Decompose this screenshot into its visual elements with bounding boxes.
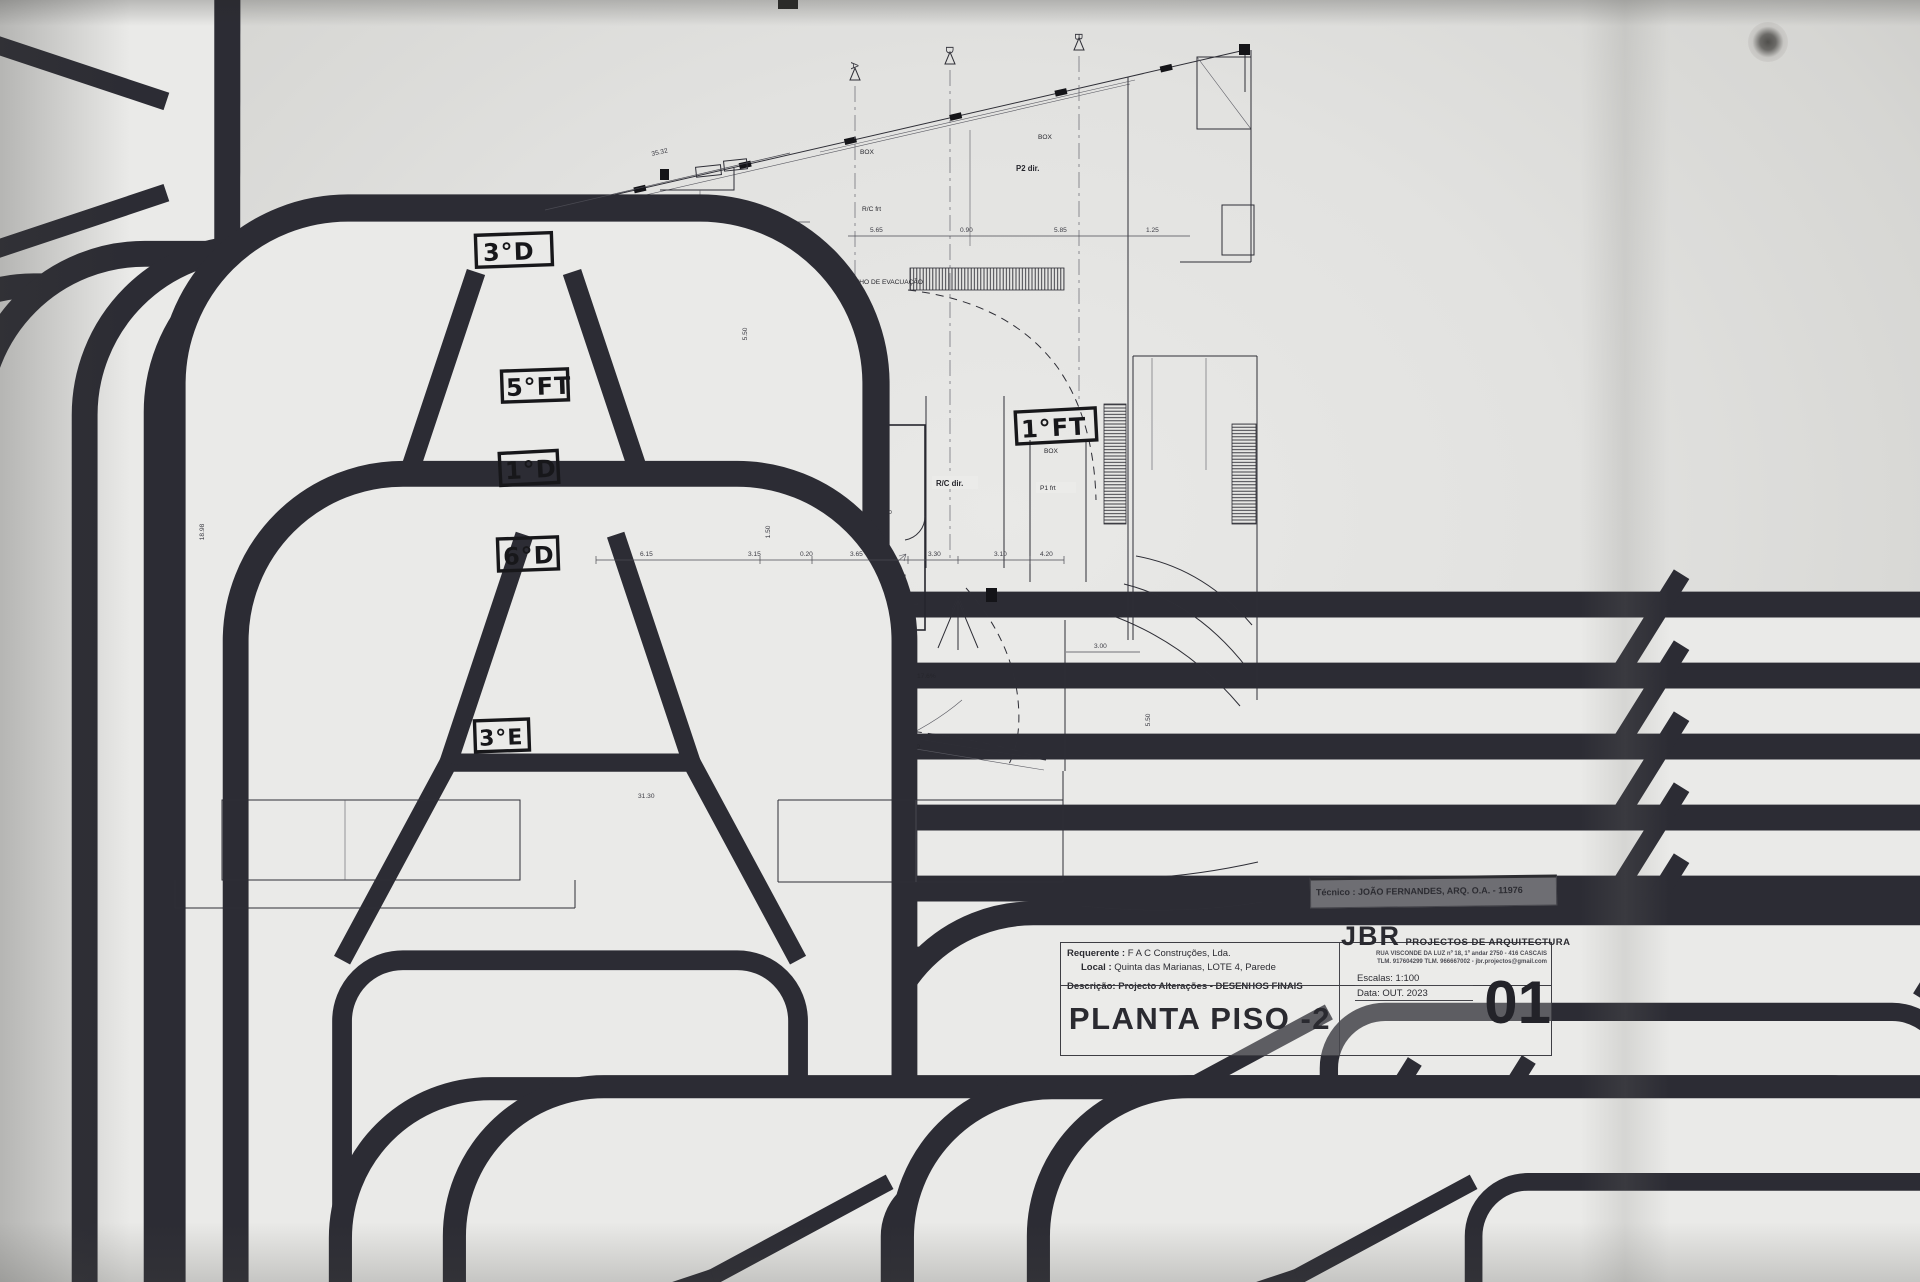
firm-name: PROJECTOS DE ARQUITECTURA (1405, 937, 1570, 948)
dim-31-30: 31.30 (638, 793, 655, 800)
dim-5-50-right: 5.50 (1145, 713, 1152, 726)
scanned-floor-plan-photo: A D B B C C (0, 0, 1920, 1282)
dim-5-50-ramp: 5.50 (742, 327, 749, 340)
dim-1-25: 1.25 (1146, 227, 1159, 234)
firm-address: RUA VISCONDE DA LUZ nº 18, 1º andar 2750… (1341, 951, 1547, 959)
title-block-right: JBR PROJECTOS DE ARQUITECTURA RUA VISCON… (1339, 943, 1551, 1055)
local-label: Local : (1081, 962, 1112, 973)
descricao-value: Projecto Alterações - DESENHOS FINAIS (1118, 981, 1302, 992)
dim-1-50: 1.50 (765, 525, 772, 538)
tecnico-strip: Técnico : JOÃO FERNANDES, ARQ. O.A. - 11… (1310, 874, 1557, 908)
date-row: Data: OUT. 2023 (1355, 986, 1473, 1001)
handwritten-3e: 3°E (479, 725, 524, 752)
date-value: OUT. 2023 (1382, 988, 1427, 999)
box-label: BOX (860, 149, 875, 156)
p2-dir-label: P2 dir. (1016, 164, 1039, 173)
p1-frt-label: P1 frt (1040, 485, 1056, 492)
dim-5-85: 5.85 (1054, 227, 1067, 234)
descricao-label: Descrição: (1067, 981, 1116, 992)
dim-35-32: 35.32 (651, 147, 669, 158)
scale-value: 1:100 (1396, 973, 1420, 984)
firm-logo: JBR PROJECTOS DE ARQUITECTURA (1341, 921, 1571, 952)
dim-3-10: 3.10 (994, 551, 1007, 558)
handwritten-5ft: 5°FT (506, 372, 572, 402)
dim-3-00: 3.00 (1094, 643, 1107, 650)
scale-row: Escalas: 1:100 (1355, 971, 1473, 986)
local-value: Quinta das Marianas, LOTE 4, Parede (1114, 962, 1276, 973)
dim-3-65: 3.65 (850, 551, 863, 558)
descricao-row: Descrição: Projecto Alterações - DESENHO… (1061, 973, 1339, 992)
marker-b-top: B (1072, 33, 1084, 40)
dim-0-90: 0.90 (960, 227, 973, 234)
dim-3-15: 3.15 (748, 551, 761, 558)
box-label: BOX (1038, 134, 1053, 141)
handwritten-3d: 3°D (483, 237, 536, 267)
requerente-label: Requerente : (1067, 948, 1125, 959)
drawing-title: PLANTA PISO -2 (1061, 1001, 1339, 1037)
sheet-number: 01 (1484, 973, 1551, 1033)
local-row: Local : Quinta das Marianas, LOTE 4, Par… (1061, 959, 1339, 973)
dim-4-20: 4.20 (1040, 551, 1053, 558)
firm-initials: JBR (1341, 921, 1401, 951)
title-block: Requerente : F A C Construções, Lda. Loc… (1060, 942, 1552, 1056)
scale-date-block: Escalas: 1:100 Data: OUT. 2023 (1355, 971, 1473, 1001)
box-label: BOX (1044, 448, 1059, 455)
marker-a: A (848, 62, 860, 70)
handwritten-1d: 1°D (504, 455, 557, 486)
title-block-left: Requerente : F A C Construções, Lda. Loc… (1061, 943, 1340, 1055)
dim-0-20: 0.20 (800, 551, 813, 558)
marker-d: D (943, 46, 955, 54)
dim-3-30: 3.30 (928, 551, 941, 558)
firm-contacts: TLM. 917604299 TLM. 966667002 - jbr.proj… (1341, 959, 1547, 967)
rc-frt-label: R/C frt (862, 206, 881, 213)
requerente-row: Requerente : F A C Construções, Lda. (1061, 943, 1339, 959)
dim-18-98: 18.98 (199, 523, 206, 540)
firm-address-block: RUA VISCONDE DA LUZ nº 18, 1º andar 2750… (1341, 951, 1547, 966)
car-icon (1038, 1059, 1920, 1282)
handwritten-6d: 6°D (503, 541, 556, 571)
dim-5-65: 5.65 (870, 227, 883, 234)
date-label: Data: (1357, 988, 1380, 999)
floor-plan-drawing: A D B B C C (0, 0, 1920, 1282)
tecnico-text: Técnico : JOÃO FERNANDES, ARQ. O.A. - 11… (1316, 885, 1523, 898)
requerente-value: F A C Construções, Lda. (1128, 948, 1231, 959)
handwritten-1ft: 1°FT (1020, 412, 1087, 443)
scale-label: Escalas: (1357, 973, 1393, 984)
rc-dir-mid-label: R/C dir. (936, 479, 963, 488)
dim-6-15: 6.15 (640, 551, 653, 558)
